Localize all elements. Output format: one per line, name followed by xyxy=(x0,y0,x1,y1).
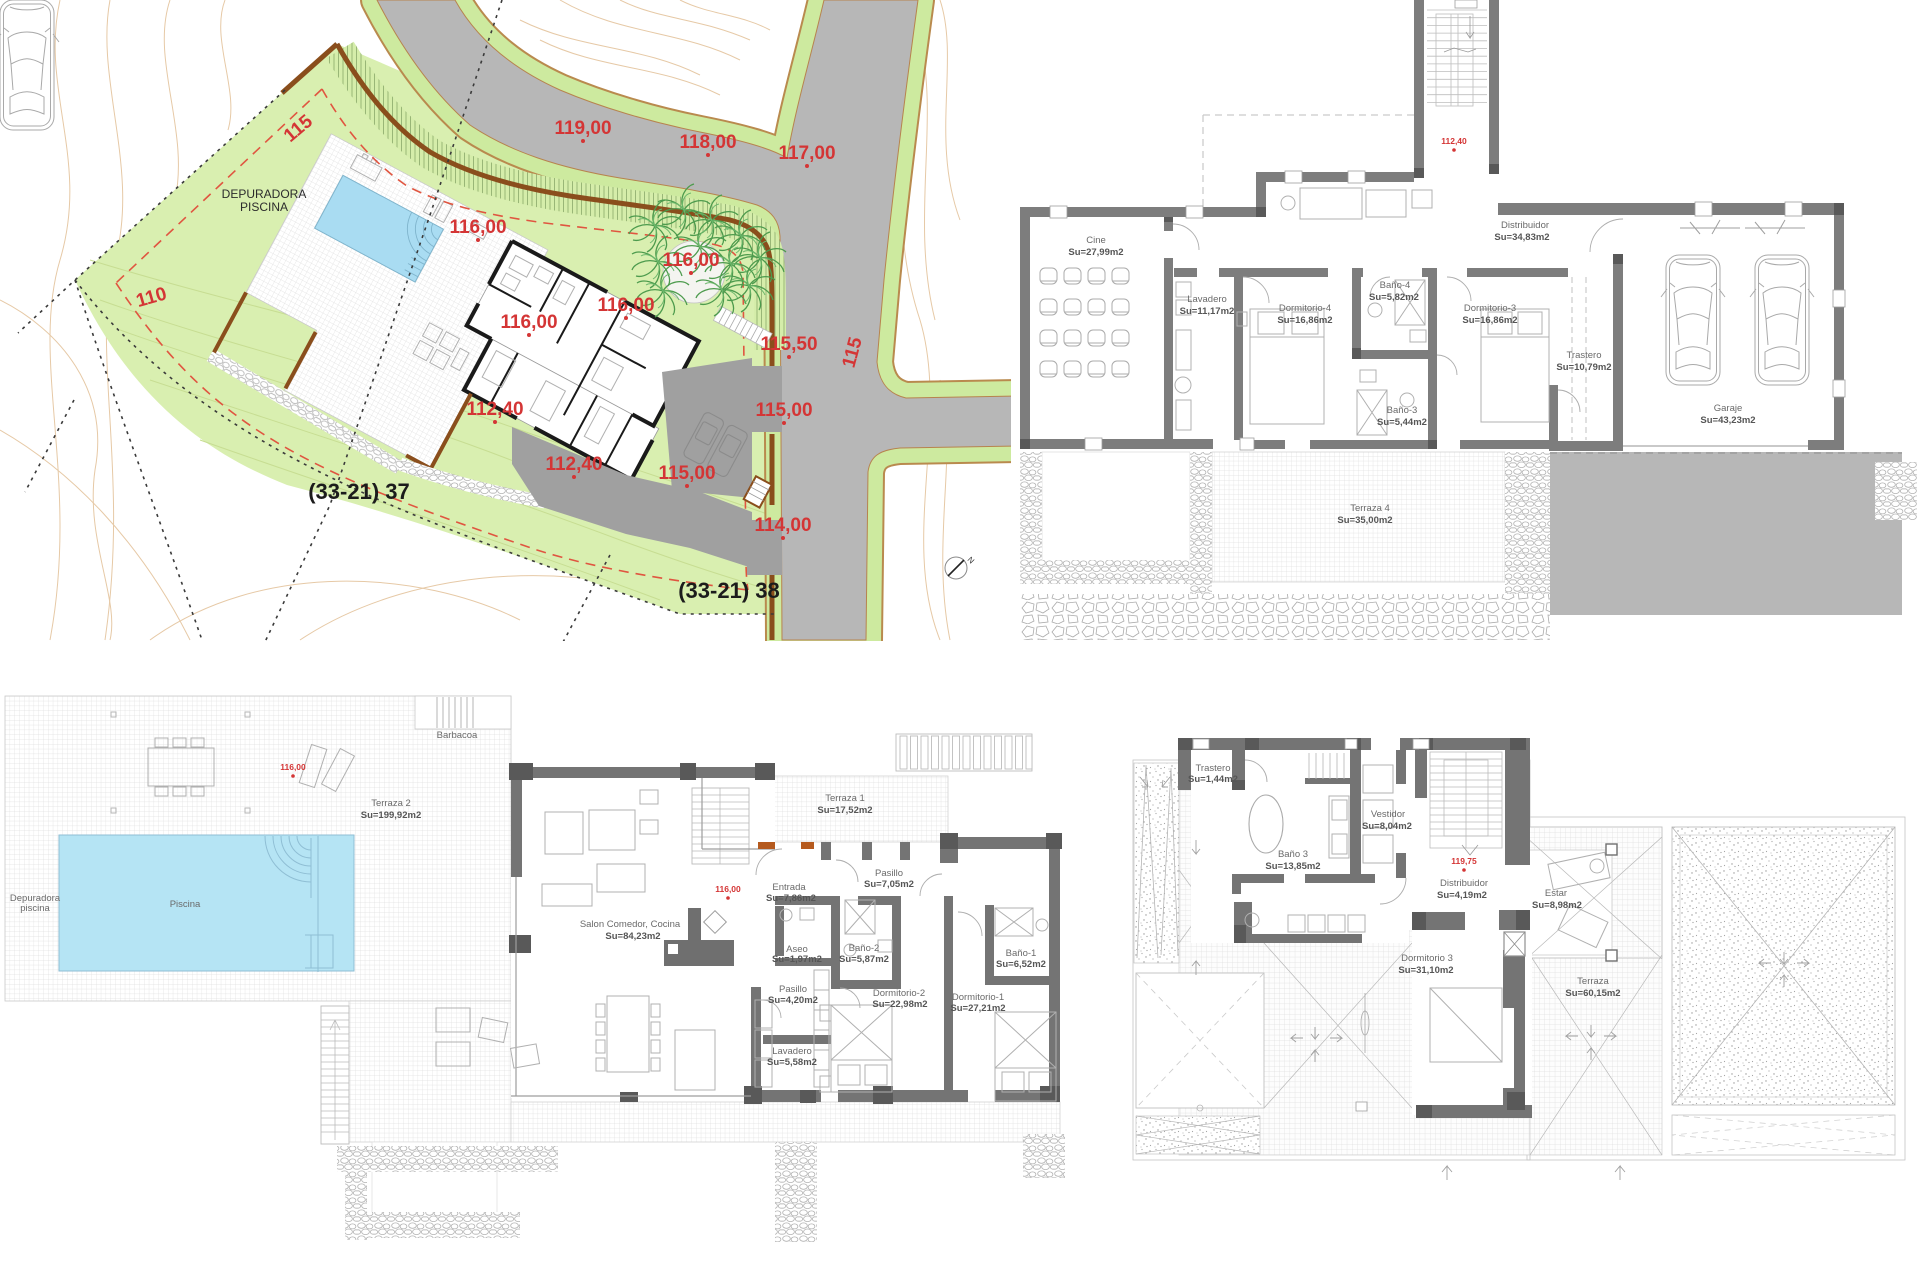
svg-text:Baño-2: Baño-2 xyxy=(849,943,880,954)
svg-text:112,40: 112,40 xyxy=(545,454,602,475)
svg-text:Su=6,52m2: Su=6,52m2 xyxy=(996,959,1046,970)
svg-text:Baño-1: Baño-1 xyxy=(1006,948,1037,959)
svg-text:piscina: piscina xyxy=(20,903,50,914)
svg-text:115,50: 115,50 xyxy=(760,334,817,355)
svg-text:Su=1,44m2: Su=1,44m2 xyxy=(1188,774,1238,785)
svg-text:Su=16,86m2: Su=16,86m2 xyxy=(1462,315,1517,326)
svg-text:DEPURADORA: DEPURADORA xyxy=(222,187,307,201)
svg-text:Lavadero: Lavadero xyxy=(772,1046,812,1057)
svg-text:Su=5,58m2: Su=5,58m2 xyxy=(767,1057,817,1068)
svg-text:Su=43,23m2: Su=43,23m2 xyxy=(1700,415,1755,426)
svg-text:Su=13,85m2: Su=13,85m2 xyxy=(1265,861,1320,872)
svg-text:Terraza: Terraza xyxy=(1577,976,1609,987)
svg-text:Terraza 4: Terraza 4 xyxy=(1350,503,1390,514)
svg-text:Trastero: Trastero xyxy=(1566,350,1601,361)
svg-text:Baño-4: Baño-4 xyxy=(1380,280,1411,291)
svg-text:Baño-3: Baño-3 xyxy=(1387,405,1418,416)
svg-text:Su=5,44m2: Su=5,44m2 xyxy=(1377,417,1427,428)
svg-text:Piscina: Piscina xyxy=(170,899,201,910)
svg-text:Terraza 2: Terraza 2 xyxy=(371,798,411,809)
svg-text:117,00: 117,00 xyxy=(778,143,835,164)
svg-text:115,00: 115,00 xyxy=(755,400,812,421)
svg-text:Trastero: Trastero xyxy=(1195,763,1230,774)
svg-text:119,00: 119,00 xyxy=(554,118,611,139)
svg-text:Dormitorio-3: Dormitorio-3 xyxy=(1464,303,1516,314)
svg-text:Su=199,92m2: Su=199,92m2 xyxy=(361,810,421,821)
svg-text:Su=31,10m2: Su=31,10m2 xyxy=(1398,965,1453,976)
svg-text:Su=16,86m2: Su=16,86m2 xyxy=(1277,315,1332,326)
svg-text:Su=4,19m2: Su=4,19m2 xyxy=(1437,890,1487,901)
svg-text:Su=84,23m2: Su=84,23m2 xyxy=(605,931,660,942)
svg-text:Entrada: Entrada xyxy=(772,882,806,893)
svg-text:Distribuidor: Distribuidor xyxy=(1501,220,1549,231)
svg-text:Dormitorio-1: Dormitorio-1 xyxy=(952,992,1004,1003)
svg-text:Terraza 1: Terraza 1 xyxy=(825,793,865,804)
svg-text:Distribuidor: Distribuidor xyxy=(1440,878,1488,889)
svg-text:Su=7,05m2: Su=7,05m2 xyxy=(864,879,914,890)
svg-text:Su=60,15m2: Su=60,15m2 xyxy=(1565,988,1620,999)
svg-text:Su=7,86m2: Su=7,86m2 xyxy=(766,893,816,904)
svg-text:Su=1,97m2: Su=1,97m2 xyxy=(772,954,822,965)
svg-text:116,00: 116,00 xyxy=(500,312,557,333)
svg-text:118,00: 118,00 xyxy=(679,132,736,153)
svg-text:Estar: Estar xyxy=(1545,888,1567,899)
svg-text:Pasillo: Pasillo xyxy=(779,984,807,995)
svg-text:Pasillo: Pasillo xyxy=(875,868,903,879)
svg-text:115,00: 115,00 xyxy=(658,463,715,484)
svg-text:Su=4,20m2: Su=4,20m2 xyxy=(768,995,818,1006)
svg-text:Barbacoa: Barbacoa xyxy=(437,730,478,741)
svg-text:112,40: 112,40 xyxy=(466,399,523,420)
svg-text:Garaje: Garaje xyxy=(1714,403,1743,414)
svg-text:Dormitorio 3: Dormitorio 3 xyxy=(1401,953,1453,964)
svg-text:Su=27,21m2: Su=27,21m2 xyxy=(950,1003,1005,1014)
svg-text:116,00: 116,00 xyxy=(280,762,306,772)
svg-text:Su=5,87m2: Su=5,87m2 xyxy=(839,954,889,965)
svg-text:Su=27,99m2: Su=27,99m2 xyxy=(1068,247,1123,258)
svg-text:Su=35,00m2: Su=35,00m2 xyxy=(1337,515,1392,526)
svg-text:Su=17,52m2: Su=17,52m2 xyxy=(817,805,872,816)
svg-text:Su=22,98m2: Su=22,98m2 xyxy=(872,999,927,1010)
svg-text:Su=11,17m2: Su=11,17m2 xyxy=(1180,306,1235,317)
svg-text:Su=34,83m2: Su=34,83m2 xyxy=(1494,232,1549,243)
svg-text:114,00: 114,00 xyxy=(754,515,811,536)
svg-text:PISCINA: PISCINA xyxy=(240,200,288,214)
svg-text:112,40: 112,40 xyxy=(1441,136,1467,146)
svg-text:Salon Comedor, Cocina: Salon Comedor, Cocina xyxy=(580,919,681,930)
svg-text:Su=10,79m2: Su=10,79m2 xyxy=(1556,362,1611,373)
svg-text:Dormitorio-2: Dormitorio-2 xyxy=(873,988,925,999)
svg-text:Su=8,04m2: Su=8,04m2 xyxy=(1362,821,1412,832)
svg-text:Su=8,98m2: Su=8,98m2 xyxy=(1532,900,1582,911)
svg-text:119,75: 119,75 xyxy=(1451,856,1477,866)
svg-text:(33-21) 38: (33-21) 38 xyxy=(678,578,780,603)
svg-text:Dormitorio-4: Dormitorio-4 xyxy=(1279,303,1331,314)
svg-text:116,00: 116,00 xyxy=(449,217,506,238)
svg-text:Vestidor: Vestidor xyxy=(1371,809,1405,820)
svg-text:116,00: 116,00 xyxy=(715,884,741,894)
svg-text:Cine: Cine xyxy=(1086,235,1106,246)
svg-text:(33-21) 37: (33-21) 37 xyxy=(308,479,410,504)
svg-text:116,00: 116,00 xyxy=(597,295,654,316)
svg-text:Su=5,82m2: Su=5,82m2 xyxy=(1369,292,1419,303)
svg-text:Baño 3: Baño 3 xyxy=(1278,849,1308,860)
svg-text:116,00: 116,00 xyxy=(662,250,719,271)
svg-text:Lavadero: Lavadero xyxy=(1187,294,1227,305)
